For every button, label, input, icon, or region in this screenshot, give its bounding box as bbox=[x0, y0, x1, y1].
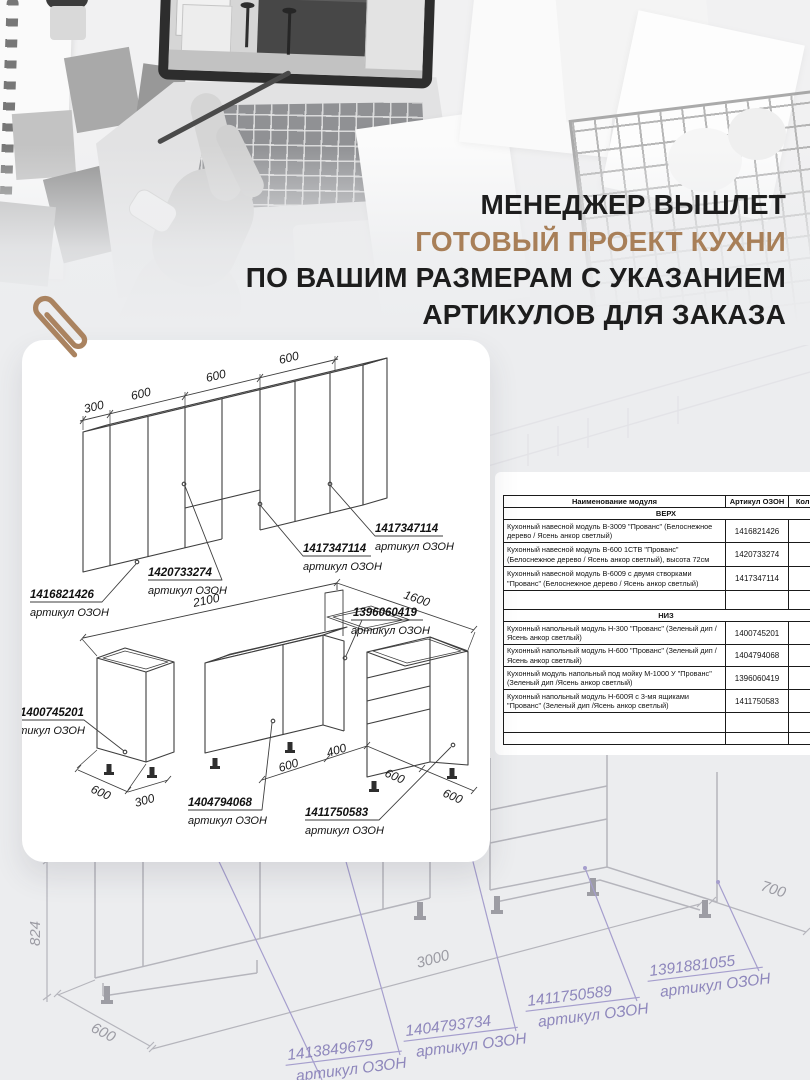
module-article: 1411750583 bbox=[726, 690, 789, 713]
article-caption: артикул ОЗОН bbox=[22, 725, 85, 737]
module-name: Кухонный навесной модуль В-3009 "Прованс… bbox=[504, 520, 726, 543]
article-caption: артикул ОЗОН bbox=[305, 825, 384, 837]
article-caption: артикул ОЗОН bbox=[375, 541, 454, 553]
headline: МЕНЕДЖЕР ВЫШЛЕТ ГОТОВЫЙ ПРОЕКТ КУХНИ ПО … bbox=[246, 187, 786, 333]
module-name: Кухонный модуль напольный под мойку М-10… bbox=[504, 667, 726, 690]
module-article: 1416821426 bbox=[726, 520, 789, 543]
module-article: 1400745201 bbox=[726, 622, 789, 645]
article-number: 1417347114 bbox=[303, 543, 367, 555]
module-qty bbox=[789, 543, 810, 567]
module-name: Кухонный напольный модуль Н-600Я с 3-мя … bbox=[504, 690, 726, 713]
module-qty bbox=[789, 520, 810, 543]
promo-page: МЕНЕДЖЕР ВЫШЛЕТ ГОТОВЫЙ ПРОЕКТ КУХНИ ПО … bbox=[0, 0, 810, 1080]
headline-line-2-accent: ГОТОВЫЙ ПРОЕКТ КУХНИ bbox=[246, 224, 786, 261]
dim-600: 600 bbox=[88, 1019, 119, 1046]
dim-600: 600 bbox=[441, 786, 465, 807]
article-caption: артикул ОЗОН bbox=[303, 561, 382, 573]
article-number: 1404794068 bbox=[188, 797, 253, 809]
module-qty bbox=[789, 667, 810, 690]
module-name: Кухонный навесной модуль В-600 1СТВ "Про… bbox=[504, 543, 726, 567]
headline-line-1: МЕНЕДЖЕР ВЫШЛЕТ bbox=[246, 187, 786, 224]
dim-824: 824 bbox=[27, 921, 44, 946]
article-number: 1396060419 bbox=[353, 607, 418, 619]
dim-3000: 3000 bbox=[415, 947, 452, 972]
module-qty bbox=[789, 645, 810, 667]
article-caption: артикул ОЗОН bbox=[351, 625, 430, 637]
dim-400: 400 bbox=[325, 741, 349, 760]
section-niz: НИЗ bbox=[504, 610, 810, 622]
module-name: Кухонный напольный модуль Н-300 "Прованс… bbox=[504, 622, 726, 645]
module-qty bbox=[789, 622, 810, 645]
dim-600: 600 bbox=[277, 756, 301, 775]
module-name: Кухонный напольный модуль Н-600 "Прованс… bbox=[504, 645, 726, 667]
kitchen-drawings: 300 600 600 600 1416821426 артикул ОЗОН … bbox=[22, 340, 490, 862]
module-name: Кухонный навесной модуль В-6009 с двумя … bbox=[504, 567, 726, 591]
sketch-label: 1391881055 артикул ОЗОН bbox=[645, 948, 772, 1002]
sketch-label: 1404793734 артикул ОЗОН bbox=[401, 1008, 528, 1062]
faint-background-sketch bbox=[488, 338, 810, 478]
dim-600: 600 bbox=[277, 349, 300, 367]
dim-600: 600 bbox=[129, 385, 152, 403]
article-number: 1420733274 bbox=[148, 567, 213, 579]
module-article: 1420733274 bbox=[726, 543, 789, 567]
article-caption: артикул ОЗОН bbox=[188, 815, 267, 827]
dim-300: 300 bbox=[133, 791, 156, 810]
article-number: 1417347114 bbox=[375, 523, 439, 535]
article-number: 1411750583 bbox=[305, 807, 369, 819]
col-header-qty: Кол-во bbox=[789, 496, 810, 508]
project-card: 300 600 600 600 1416821426 артикул ОЗОН … bbox=[22, 340, 490, 862]
article-caption: артикул ОЗОН bbox=[30, 607, 109, 619]
headline-line-4: АРТИКУЛОВ ДЛЯ ЗАКАЗА bbox=[246, 297, 786, 334]
section-verh: ВЕРХ bbox=[504, 508, 810, 520]
dim-300: 300 bbox=[82, 398, 105, 416]
module-qty bbox=[789, 567, 810, 591]
paperclip-icon bbox=[28, 286, 100, 372]
col-header-module: Наименование модуля bbox=[504, 496, 726, 508]
module-qty bbox=[789, 690, 810, 713]
module-article: 1396060419 bbox=[726, 667, 789, 690]
headline-line-3: ПО ВАШИМ РАЗМЕРАМ С УКАЗАНИЕМ bbox=[246, 260, 786, 297]
dim-600: 600 bbox=[89, 782, 113, 803]
dim-600: 600 bbox=[383, 766, 407, 787]
sketch-label: 1413849679 артикул ОЗОН bbox=[283, 1033, 408, 1080]
order-table: Наименование модуля Артикул ОЗОН Кол-во … bbox=[503, 495, 810, 745]
col-header-article: Артикул ОЗОН bbox=[726, 496, 789, 508]
dim-600: 600 bbox=[204, 367, 227, 385]
article-number: 1400745201 bbox=[22, 707, 84, 719]
article-number: 1416821426 bbox=[30, 589, 95, 601]
module-article: 1417347114 bbox=[726, 567, 789, 591]
module-article: 1404794068 bbox=[726, 645, 789, 667]
dim-700: 700 bbox=[759, 878, 789, 902]
